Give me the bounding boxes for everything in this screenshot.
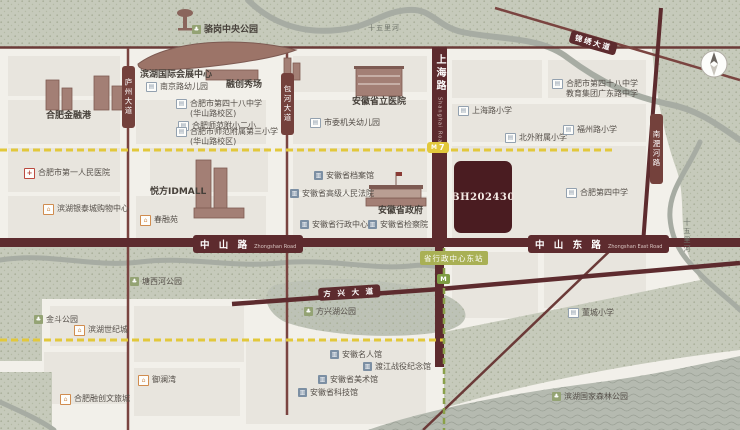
poi-label: 春融苑: [154, 215, 178, 225]
residence-icon: ⌂: [74, 325, 85, 336]
zhongshan-east-road-zh: 中 山 东 路: [535, 237, 604, 251]
poi-label: 董城小学: [582, 308, 614, 318]
road-label-shanghai-road: 上海路 Shanghai Road: [433, 54, 446, 148]
poi-yuefang-idmall: 悦方IDMALL: [150, 187, 206, 199]
school-icon: ▤: [176, 99, 187, 109]
poi-label: 悦方IDMALL: [150, 187, 206, 199]
poi-label-line1: 合肥市师范附属第三小学: [190, 127, 278, 137]
poi-exhibition-center: 滨湖国际会展中心: [140, 70, 212, 82]
zhongshan-east-road-en: Zhongshan East Road: [608, 244, 663, 250]
poi-label: 安徽省高级人民法院: [302, 189, 374, 199]
poi-label: 南京路幼儿园: [160, 82, 208, 92]
poi-label: 安徽省科技馆: [310, 388, 358, 398]
poi-label: 金斗公园: [46, 315, 78, 325]
metro-line7-number: 7: [439, 143, 445, 152]
fangxing-avenue-zh: 方 兴 大 道: [323, 286, 375, 300]
poi-nanjing-road-kindergarten: ▤ 南京路幼儿园: [146, 82, 208, 92]
poi-label: 福州路小学: [577, 125, 617, 135]
shanghai-road-zh: 上海路: [432, 54, 447, 93]
park-icon: ♣: [34, 315, 43, 324]
metro-station-admin-center-east: 省行政中心东站: [420, 251, 488, 265]
poi-label-line2: (华山路校区): [190, 109, 262, 119]
poi-label: 北外附属小学: [519, 133, 567, 143]
parcel-code: BH202430: [451, 192, 515, 203]
river-label-shiwuli-top: 十五里河: [368, 23, 400, 33]
park-icon: ♣: [304, 307, 313, 316]
metro-logo-icon: M: [440, 275, 446, 283]
museum-icon: ▥: [318, 375, 327, 384]
residence-icon: ⌂: [60, 394, 71, 405]
poi-fangxinghu-park: ♣ 方兴湖公园: [304, 307, 356, 317]
poi-binhu-forest-park: ♣ 滨湖国家森林公园: [552, 392, 628, 402]
government-icon: ▥: [300, 220, 309, 229]
poi-celebrity-museum: ▥ 安徽名人馆: [330, 350, 382, 360]
poi-label: 方兴湖公园: [316, 307, 356, 317]
metro-line7-badge: M 7: [427, 142, 449, 153]
poi-label: 市委机关幼儿园: [324, 118, 380, 128]
poi-no4-middle-school: ▤ 合肥第四中学: [566, 188, 628, 198]
zhongshan-road-zh: 中 山 路: [200, 237, 250, 251]
school-icon: ▤: [146, 82, 157, 92]
poi-provincial-archives: ▥ 安徽省档案馆: [314, 171, 374, 181]
poi-label: 渡江战役纪念馆: [375, 362, 431, 372]
poi-no48-huashan-campus: ▤ 合肥市第四十八中学 (华山路校区): [176, 99, 262, 120]
poi-yintai-mall: ⌂ 滨湖银泰城购物中心: [43, 204, 129, 215]
poi-label: 合肥金融港: [46, 111, 91, 123]
government-icon: ▥: [314, 171, 323, 180]
residence-icon: ⌂: [138, 375, 149, 386]
school-icon: ▤: [505, 133, 516, 143]
government-icon: ▥: [368, 220, 377, 229]
poi-shanghai-road-primary: ▤ 上海路小学: [458, 106, 512, 116]
park-icon: ♣: [192, 25, 201, 34]
road-plate-zhongshan-road: 中 山 路 Zhongshan Road: [193, 235, 303, 253]
poi-fuzhou-road-primary: ▤ 福州路小学: [563, 125, 617, 135]
map-canvas: 庐州大道 包河大道 南淝河路 上海路 Shanghai Road 中 山 路 Z…: [0, 0, 740, 430]
road-plate-baohe-avenue: 包河大道: [281, 73, 294, 135]
school-icon: ▤: [176, 127, 187, 137]
poi-jindou-park: ♣ 金斗公园: [34, 315, 78, 325]
park-icon: ♣: [552, 392, 561, 401]
poi-shifan-no3-primary: ▤ 合肥市师范附属第三小学 (华山路校区): [176, 127, 278, 148]
mall-icon: ⌂: [43, 204, 54, 215]
river-label-shiwuli-right: 十五里河: [682, 218, 692, 254]
poi-label: 上海路小学: [472, 106, 512, 116]
poi-label: 滨湖国际会展中心: [140, 70, 212, 82]
poi-label: 滨湖国家森林公园: [564, 392, 628, 402]
poi-high-court: ▥ 安徽省高级人民法院: [290, 189, 374, 199]
metro-logo-icon: M: [431, 144, 437, 151]
school-icon: ▤: [458, 106, 469, 116]
hospital-cross-icon: +: [24, 168, 35, 179]
shanghai-road-en: Shanghai Road: [437, 97, 443, 148]
road-plate-nanfeihe-road: 南淝河路: [650, 114, 663, 184]
poi-rongchuang-wenlvcheng: ⌂ 合肥融创文旅城: [60, 394, 130, 405]
poi-admin-center: ▥ 安徽省行政中心: [300, 220, 368, 230]
poi-label: 滨湖银泰城购物中心: [57, 204, 129, 214]
poi-science-museum: ▥ 安徽省科技馆: [298, 388, 358, 398]
poi-label: 御澜湾: [152, 375, 176, 385]
poi-label-line1: 合肥市第四十八中学: [566, 79, 638, 89]
poi-label-line2: 教育集团广东路中学: [566, 89, 638, 99]
poi-yulanwan: ⌂ 御澜湾: [138, 375, 176, 386]
museum-icon: ▥: [330, 350, 339, 359]
museum-icon: ▥: [298, 388, 307, 397]
poi-dujiang-memorial: ▥ 渡江战役纪念馆: [363, 362, 431, 372]
poi-label: 安徽省检察院: [380, 220, 428, 230]
poi-financial-port: 合肥金融港: [46, 111, 91, 123]
poi-tangxihe-park: ♣ 塘西河公园: [130, 277, 182, 287]
poi-label: 安徽省行政中心: [312, 220, 368, 230]
poi-label-line1: 合肥市第四十八中学: [190, 99, 262, 109]
provincial-hospital-building: [354, 66, 404, 96]
poi-label-line2: (华山路校区): [190, 137, 278, 147]
school-icon: ▤: [310, 118, 321, 128]
poi-binhu-century-city: ⌂ 滨湖世纪城: [74, 325, 128, 336]
poi-procuratorate: ▥ 安徽省检察院: [368, 220, 428, 230]
poi-art-museum: ▥ 安徽省美术馆: [318, 375, 378, 385]
poi-provincial-government: 安徽省政府: [378, 206, 423, 218]
school-icon: ▤: [552, 79, 563, 89]
zhongshan-road-en: Zhongshan Road: [254, 244, 296, 250]
residence-icon: ⌂: [140, 215, 151, 226]
school-icon: ▤: [563, 125, 574, 135]
school-icon: ▤: [566, 188, 577, 198]
poi-label: 滨湖世纪城: [88, 325, 128, 335]
poi-rongchuang-show: 融创秀场: [226, 80, 262, 92]
park-icon: ♣: [130, 277, 139, 286]
poi-beiwai-primary: ▤ 北外附属小学: [505, 133, 567, 143]
poi-label: 合肥融创文旅城: [74, 394, 130, 404]
museum-icon: ▥: [363, 362, 372, 371]
poi-label: 塘西河公园: [142, 277, 182, 287]
school-icon: ▤: [568, 308, 579, 318]
poi-label: 融创秀场: [226, 80, 262, 92]
poi-provincial-hospital: 安徽省立医院: [352, 97, 406, 109]
poi-label: 安徽省政府: [378, 206, 423, 218]
government-icon: ▥: [290, 189, 299, 198]
poi-dongcheng-primary: ▤ 董城小学: [568, 308, 614, 318]
road-plate-zhongshan-east-road: 中 山 东 路 Zhongshan East Road: [528, 235, 669, 253]
metro-station-badge: M: [437, 274, 450, 284]
poi-first-peoples-hospital: + 合肥市第一人民医院: [24, 168, 110, 179]
poi-label: 骆岗中央公园: [204, 25, 258, 37]
poi-city-kindergarten: ▤ 市委机关幼儿园: [310, 118, 380, 128]
poi-label: 合肥市第一人民医院: [38, 168, 110, 178]
poi-label: 安徽省档案馆: [326, 171, 374, 181]
poi-label: 安徽名人馆: [342, 350, 382, 360]
compass-icon: [701, 51, 727, 77]
poi-chunrongyuan: ⌂ 春融苑: [140, 215, 178, 226]
poi-label: 安徽省美术馆: [330, 375, 378, 385]
parcel-block-bh202430: BH202430: [454, 161, 512, 233]
poi-luogang-central-park: ♣ 骆岗中央公园: [192, 25, 258, 37]
road-plate-luzhou-avenue: 庐州大道: [122, 66, 135, 128]
poi-label: 安徽省立医院: [352, 97, 406, 109]
poi-no48-guangdong-campus: ▤ 合肥市第四十八中学 教育集团广东路中学: [552, 79, 638, 100]
poi-label: 合肥第四中学: [580, 188, 628, 198]
